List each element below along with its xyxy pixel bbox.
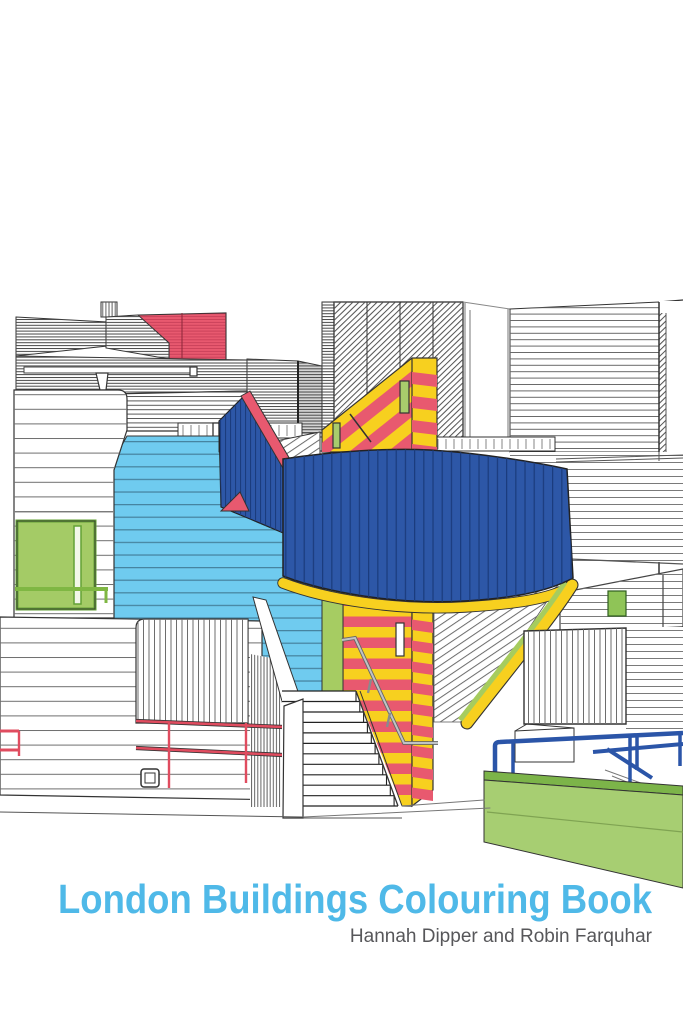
svg-text:Hannah Dipper and Robin Farquh: Hannah Dipper and Robin Farquhar — [350, 926, 653, 947]
svg-text:London Buildings Colouring Boo: London Buildings Colouring Book — [58, 876, 652, 922]
